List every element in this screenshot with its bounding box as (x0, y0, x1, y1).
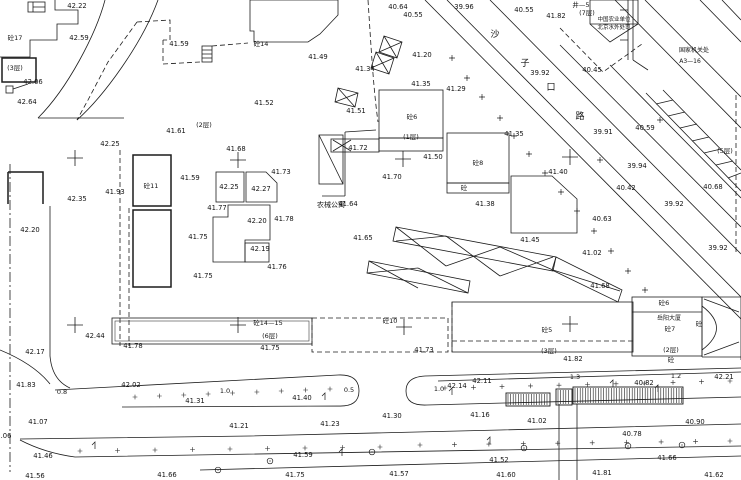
tree-circle-dot (627, 445, 628, 446)
spot-elevation: 42.14 (447, 382, 466, 390)
slope-label: 1.0 (434, 385, 444, 393)
crossed-box (379, 36, 402, 58)
lamp-mark (487, 437, 490, 444)
spot-elevation: 41.59 (293, 451, 312, 459)
spot-elevation: 41.31 (185, 397, 204, 405)
building-label: 砼8 (473, 158, 484, 167)
building-label: (2层) (196, 121, 212, 129)
spot-elevation: 40.55 (403, 11, 422, 19)
grid-cross (67, 317, 83, 333)
spot-elevation: 39.92 (664, 200, 683, 208)
grid-cross (395, 151, 411, 167)
building-outline (511, 176, 577, 233)
road-edge (722, 0, 741, 20)
spot-elevation: 39.92 (708, 244, 727, 252)
sidewalk-tick (254, 390, 259, 395)
sidewalk-tick (328, 387, 333, 392)
survey-grid-crosses (67, 149, 578, 335)
sidewalk-tick (659, 439, 664, 444)
spot-elevation: 40.90 (685, 418, 704, 426)
building-divisions (656, 100, 741, 178)
spot-elevation: 41.93 (105, 188, 124, 196)
small-structure (6, 86, 13, 93)
building-label: 砼17 (8, 33, 23, 42)
stairs-symbol (202, 46, 212, 62)
spot-elevation: 40.42 (616, 184, 635, 192)
sidewalk-tick (340, 445, 345, 450)
spot-elevation: 41.52 (489, 456, 508, 464)
road-curb (50, 206, 70, 388)
spot-elevation: 42.21 (714, 373, 733, 381)
sidewalk-tick (614, 381, 619, 386)
sidewalk-tick (115, 448, 120, 453)
building-label: 砼 (461, 183, 468, 192)
spot-elevation: 41.68 (226, 145, 245, 153)
sidewalk-tick (671, 380, 676, 385)
tree-mark-dot (659, 119, 660, 120)
sidewalk-tick (585, 382, 590, 387)
building-label: 井—5 (572, 0, 589, 9)
spot-elevation: 40.59 (635, 124, 654, 132)
spot-elevation: 42.06 (23, 78, 42, 86)
tree-circle-dot (371, 451, 372, 452)
road-edge (20, 440, 741, 457)
grid-cross (562, 316, 578, 332)
road-name-char: 路 (575, 110, 584, 122)
building-outline (8, 172, 43, 204)
place-label: 中国农业单位 (597, 15, 631, 23)
tree-mark-dot (610, 250, 611, 251)
spot-elevation: 41.66 (157, 471, 176, 479)
tree-mark-dot (627, 270, 628, 271)
spot-elevation: 41.75 (193, 272, 212, 280)
tree-mark-dot (499, 117, 500, 118)
subway-entrance-box (506, 393, 550, 406)
road-edge (615, 0, 741, 128)
spot-elevation: 41.59 (169, 40, 188, 48)
spot-elevation: 42.25 (100, 140, 119, 148)
building-label: 砼5 (542, 325, 553, 334)
tree-mark-dot (644, 289, 645, 290)
spot-elevation: 41.72 (348, 144, 367, 152)
spot-elevation: 39.91 (593, 128, 612, 136)
spot-elevation: 42.64 (17, 98, 36, 106)
map-labels: 42.2242.5942.0642.6442.2541.9342.3542.20… (1, 0, 734, 480)
spot-elevation: 41.35 (504, 130, 523, 138)
place-label: A3—16 (679, 58, 701, 65)
spot-elevation: 40.68 (703, 183, 722, 191)
spot-elevation: 39.94 (627, 162, 646, 170)
sidewalk-tick (590, 440, 595, 445)
spot-elevation: 41.82 (546, 12, 565, 20)
spot-elevation: 41.83 (16, 381, 35, 389)
building-outline (702, 297, 741, 360)
spot-elevation: .06 (1, 432, 12, 440)
tree-mark-dot (481, 96, 482, 97)
spot-elevation: 41.52 (254, 99, 273, 107)
spot-elevation: 42.27 (251, 185, 270, 193)
road-edge (700, 0, 741, 42)
spot-elevation: 41.62 (704, 471, 723, 479)
slope-label: 1.2 (671, 372, 681, 380)
building-outline (133, 210, 171, 287)
sidewalk-tick (555, 441, 560, 446)
grid-cross (396, 319, 412, 335)
building-outline (213, 205, 270, 262)
spot-elevation: 39.92 (530, 69, 549, 77)
sidewalk-tick (693, 439, 698, 444)
tree-mark-dot (593, 230, 594, 231)
tree-mark-dot (576, 210, 577, 211)
building-label: (2层) (663, 346, 679, 354)
tree-mark-dot (599, 159, 600, 160)
spot-elevation: 42.02 (121, 381, 140, 389)
road-name-char: 口 (546, 83, 555, 93)
building-label: (6层) (262, 332, 278, 340)
sidewalk-tick (303, 388, 308, 393)
building-label: 砼14 (254, 39, 269, 48)
sidewalk-tick (500, 384, 505, 389)
tree-circle-dot (523, 447, 524, 448)
spot-elevation: 41.02 (527, 417, 546, 425)
spot-elevation: 41.38 (475, 200, 494, 208)
road-edge (77, 0, 158, 120)
wall-chain (552, 257, 622, 302)
sidewalk-tick (728, 439, 733, 444)
spot-elevation: 41.75 (188, 233, 207, 241)
building-label: (1层) (403, 133, 419, 141)
spot-elevation: 41.20 (412, 51, 431, 59)
spot-elevation: 41.45 (520, 236, 539, 244)
sidewalk-tick (265, 446, 270, 451)
subway-entrance-box (573, 387, 683, 404)
building-label: 砼10 (383, 316, 398, 325)
buildings (0, 0, 741, 360)
spot-elevation: 42.25 (219, 183, 238, 191)
spot-elevation: 41.40 (292, 394, 311, 402)
spot-elevation: 42.22 (67, 2, 86, 10)
fence (137, 20, 170, 40)
spot-elevation: 41.70 (382, 173, 401, 181)
subway-entrance-box (556, 389, 572, 405)
building-label: (3层) (541, 347, 557, 355)
building-label: 砼14—15 (253, 318, 283, 327)
tree-circle-dot (217, 469, 218, 470)
spot-elevation: 41.16 (470, 411, 489, 419)
building-label: (5层) (717, 147, 733, 155)
spot-elevation: 41.76 (267, 263, 286, 271)
spot-elevation: 41.73 (271, 168, 290, 176)
road-edge (610, 65, 741, 198)
slope-label: 1.0 (220, 387, 230, 395)
spot-elevation: 41.75 (260, 344, 279, 352)
spot-elevation: 41.56 (25, 472, 44, 480)
spot-elevation: 40.55 (514, 6, 533, 14)
spot-elevation: 42.17 (25, 348, 44, 356)
building-label: (3层) (7, 64, 23, 72)
slope-label: 0.8 (57, 388, 67, 396)
grid-cross (562, 149, 578, 165)
parcel-boundary (620, 0, 648, 70)
sidewalk-tick (157, 394, 162, 399)
sidewalk-tick (378, 445, 383, 450)
spot-elevation: 41.35 (411, 80, 430, 88)
sidewalk-tick (624, 440, 629, 445)
sidewalk-edge (55, 375, 359, 407)
spot-elevation: 41.59 (180, 174, 199, 182)
spot-elevation: 42.35 (67, 195, 86, 203)
tree-mark-dot (451, 57, 452, 58)
building-label: 砼6 (407, 112, 418, 121)
tree-mark-dot (528, 153, 529, 154)
spot-elevation: 41.68 (590, 282, 609, 290)
sidewalk-tick (486, 442, 491, 447)
building-label: 砼11 (144, 181, 159, 190)
sidewalk-tick (557, 383, 562, 388)
spot-elevation: 42.20 (20, 226, 39, 234)
spot-elevation: 40.45 (582, 66, 601, 74)
spot-elevation: 40.82 (634, 379, 653, 387)
place-label: 北京水外处司 (597, 23, 630, 31)
map-corner-symbol (28, 2, 45, 12)
sidewalk-tick (133, 395, 138, 400)
spot-elevation: 42.19 (250, 245, 269, 253)
tree-circle-dot (681, 444, 682, 445)
compound-boundaries (77, 20, 736, 352)
building-outline (447, 133, 509, 183)
spot-elevation: 42.11 (472, 377, 491, 385)
building-label: 砼6 (659, 298, 670, 307)
spot-elevation: 41.75 (285, 471, 304, 479)
spot-elevation: 41.21 (229, 422, 248, 430)
sidewalk-tick (230, 391, 235, 396)
spot-elevation: 41.46 (33, 452, 52, 460)
spot-elevation: 41.66 (657, 454, 676, 462)
fence (212, 43, 248, 46)
spot-elevation: 41.02 (582, 249, 601, 257)
spot-elevation: 41.23 (320, 420, 339, 428)
sidewalk-tick (78, 449, 83, 454)
tree-mark-dot (466, 77, 467, 78)
spot-elevation: 41.77 (207, 204, 226, 212)
lamp-mark (610, 380, 613, 387)
road-name-char: 沙 (490, 29, 499, 40)
place-label: 岳阳大厦 (657, 314, 681, 322)
sidewalk-tick (303, 446, 308, 451)
tree-circle-dot (269, 460, 270, 461)
sidewalk-tick (452, 442, 457, 447)
sidewalk-tick (471, 385, 476, 390)
spot-elevation: 42.44 (85, 332, 104, 340)
spot-elevation: 41.40 (548, 168, 567, 176)
building-label: (7层) (579, 9, 595, 17)
building-annex (447, 183, 509, 193)
grid-cross (230, 152, 246, 168)
place-label: 农械公寓 (317, 200, 345, 209)
slope-label: 0.5 (344, 386, 354, 394)
sidewalk-tick (206, 392, 211, 397)
sidewalk-tick (528, 384, 533, 389)
road-edge (38, 0, 105, 118)
spot-elevation: 41.60 (496, 471, 515, 479)
survey-map-canvas: 42.2242.5942.0642.6442.2541.9342.3542.20… (0, 0, 741, 480)
crossing-corridor (559, 404, 577, 480)
crossed-box (335, 88, 358, 107)
spot-elevation: 41.30 (382, 412, 401, 420)
spot-elevation: 41.81 (592, 469, 611, 477)
building-label: 砼 (668, 355, 675, 364)
road-name-char: 子 (520, 58, 529, 69)
sidewalk-tick (699, 379, 704, 384)
place-label: 国家机关处 (679, 46, 709, 54)
wall-chain (367, 261, 470, 293)
courtyard-lines (322, 130, 376, 196)
grid-cross (67, 150, 83, 166)
spot-elevation: 41.50 (423, 153, 442, 161)
subway-entrance-hatching (506, 387, 683, 406)
spot-elevation: 41.73 (414, 346, 433, 354)
spot-elevation: 41.07 (28, 418, 47, 426)
tree-mark-dot (560, 191, 561, 192)
sidewalk-tick (190, 447, 195, 452)
slope-label: 1.3 (570, 373, 580, 381)
spot-elevation: 41.57 (389, 470, 408, 478)
spot-elevation: 41.61 (166, 127, 185, 135)
spot-elevation: 41.65 (353, 234, 372, 242)
map-symbols (78, 55, 733, 473)
spot-elevation: 40.78 (622, 430, 641, 438)
sidewalk-tick (418, 443, 423, 448)
lamp-mark (322, 393, 325, 400)
spot-elevation: 41.82 (563, 355, 582, 363)
wall-chain-bracing (367, 261, 468, 293)
building-outline (250, 0, 338, 42)
spot-elevation: 41.78 (123, 342, 142, 350)
tree-mark-dot (544, 172, 545, 173)
building-label: 砼7 (665, 324, 676, 333)
sidewalk-tick (279, 389, 284, 394)
spot-elevation: 41.78 (274, 215, 293, 223)
spot-elevation: 41.49 (308, 53, 327, 61)
spot-elevation: 40.63 (592, 215, 611, 223)
sidewalk-tick (228, 447, 233, 452)
grid-cross (230, 317, 246, 333)
spot-elevation: 41.51 (346, 107, 365, 115)
spot-elevation: 40.64 (388, 3, 407, 11)
spot-elevation: 39.96 (454, 3, 473, 11)
spot-elevation: 41.29 (446, 85, 465, 93)
spot-elevation: 41.34 (355, 65, 374, 73)
sidewalk-tick (153, 448, 158, 453)
building-arc-wing (702, 306, 717, 350)
spot-elevation: 42.20 (247, 217, 266, 225)
building-outline (133, 155, 171, 206)
survey-map: 42.2242.5942.0642.6442.2541.9342.3542.20… (0, 0, 741, 480)
lamp-mark (92, 442, 95, 449)
spot-elevation: 42.59 (69, 34, 88, 42)
wall-chain-bracing (553, 270, 620, 291)
building-label: 砼 (696, 319, 703, 328)
